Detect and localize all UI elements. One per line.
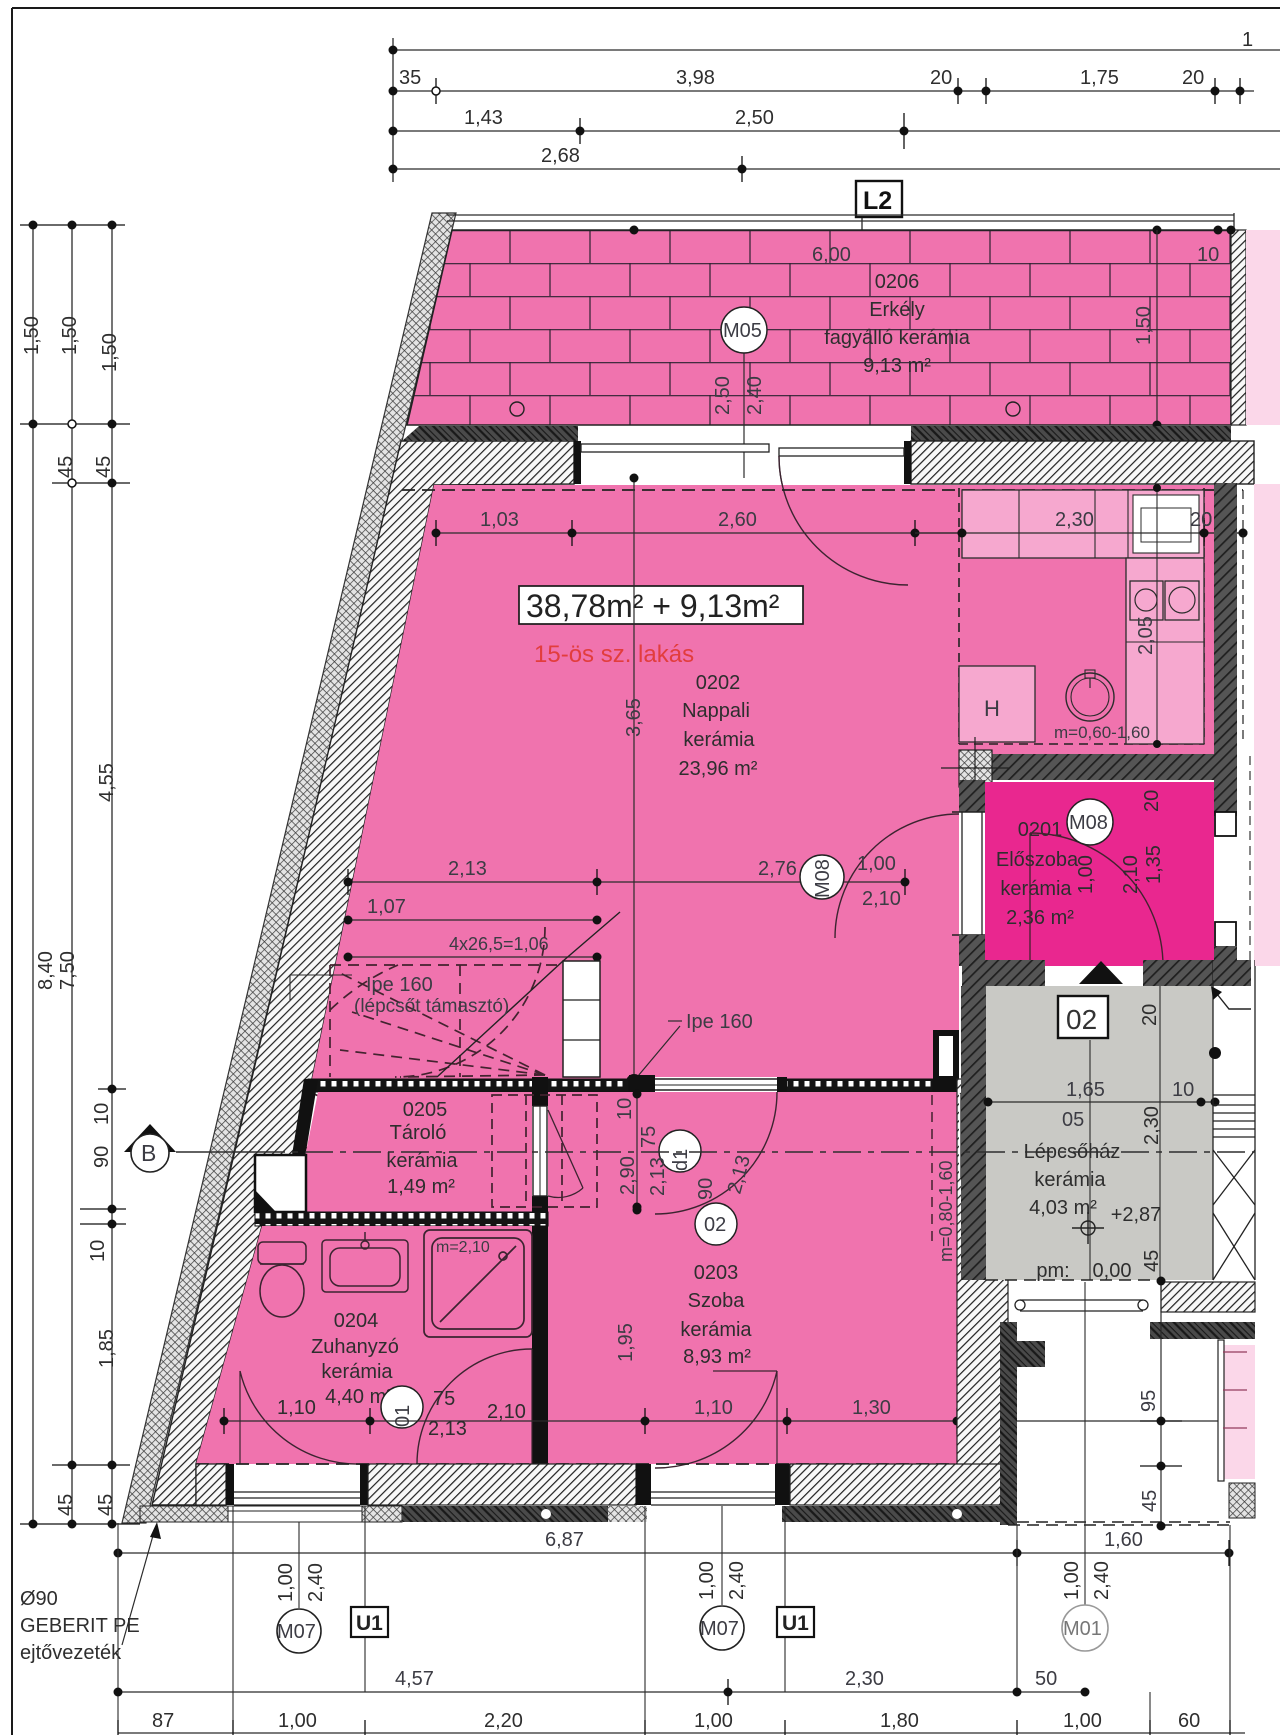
svg-text:2,05: 2,05: [1135, 616, 1157, 655]
svg-text:GEBERIT PE: GEBERIT PE: [20, 1615, 140, 1637]
svg-text:3,98: 3,98: [676, 67, 715, 89]
svg-text:10: 10: [614, 1098, 636, 1120]
svg-text:2,40: 2,40: [726, 1561, 748, 1600]
svg-text:1,50: 1,50: [99, 333, 121, 372]
svg-text:1,00: 1,00: [857, 853, 896, 875]
svg-text:Szoba: Szoba: [688, 1290, 746, 1312]
svg-text:2,30: 2,30: [1055, 509, 1094, 531]
svg-text:1: 1: [1242, 29, 1253, 51]
svg-text:ejtővezeték: ejtővezeték: [20, 1642, 122, 1664]
svg-text:U1: U1: [356, 1612, 383, 1635]
svg-text:+2,87: +2,87: [1111, 1204, 1162, 1226]
svg-text:10: 10: [1197, 244, 1219, 266]
svg-text:M07: M07: [700, 1618, 739, 1640]
svg-text:90: 90: [91, 1146, 113, 1168]
svg-text:1,10: 1,10: [694, 1397, 733, 1419]
svg-text:kerámia: kerámia: [1000, 878, 1072, 900]
svg-text:2,10: 2,10: [487, 1401, 526, 1423]
svg-text:1,80: 1,80: [880, 1710, 919, 1732]
svg-text:20: 20: [1182, 67, 1204, 89]
svg-text:01: 01: [392, 1405, 414, 1427]
svg-text:Ø90: Ø90: [20, 1588, 58, 1610]
svg-text:95: 95: [1138, 1390, 1160, 1412]
svg-text:2,90: 2,90: [617, 1156, 639, 1195]
svg-text:2,60: 2,60: [718, 509, 757, 531]
svg-text:35: 35: [399, 67, 421, 89]
svg-text:1,50: 1,50: [1133, 306, 1155, 345]
svg-text:Zuhanyzó: Zuhanyzó: [311, 1336, 399, 1358]
svg-text:20: 20: [1141, 790, 1163, 812]
svg-text:1,50: 1,50: [59, 316, 81, 355]
svg-text:kerámia: kerámia: [1034, 1169, 1106, 1191]
svg-text:0206: 0206: [875, 271, 920, 293]
svg-text:m=2,10: m=2,10: [436, 1239, 490, 1256]
svg-text:L2: L2: [863, 187, 892, 215]
svg-text:10: 10: [87, 1240, 109, 1262]
svg-text:Erkély: Erkély: [869, 299, 925, 321]
svg-text:20: 20: [1190, 509, 1212, 531]
svg-text:U1: U1: [782, 1612, 809, 1635]
svg-text:1,00: 1,00: [694, 1710, 733, 1732]
svg-text:fagyálló kerámia: fagyálló kerámia: [824, 327, 971, 349]
svg-text:kerámia: kerámia: [680, 1319, 752, 1341]
svg-text:2,20: 2,20: [484, 1710, 523, 1732]
svg-text:45: 45: [55, 456, 77, 478]
svg-text:M05: M05: [723, 320, 762, 342]
svg-text:Nappali: Nappali: [682, 700, 750, 722]
svg-text:60: 60: [1178, 1710, 1200, 1732]
svg-text:8,40: 8,40: [35, 951, 57, 990]
svg-text:1,75: 1,75: [1080, 67, 1119, 89]
svg-text:Ipe 160: Ipe 160: [686, 1011, 753, 1033]
svg-text:4x26,5=1,06: 4x26,5=1,06: [449, 934, 549, 954]
svg-text:0202: 0202: [696, 672, 741, 694]
svg-text:87: 87: [152, 1710, 174, 1732]
svg-text:7,50: 7,50: [57, 951, 79, 990]
svg-text:0201: 0201: [1018, 819, 1063, 841]
svg-text:4,55: 4,55: [96, 763, 118, 802]
svg-text:1,00: 1,00: [1075, 855, 1097, 894]
svg-text:2,10: 2,10: [862, 888, 901, 910]
svg-text:20: 20: [1139, 1004, 1161, 1026]
svg-text:1,65: 1,65: [1066, 1079, 1105, 1101]
svg-text:2,40: 2,40: [305, 1563, 327, 1602]
svg-text:0,00: 0,00: [1093, 1260, 1132, 1282]
svg-text:1,85: 1,85: [96, 1329, 118, 1368]
svg-text:1,07: 1,07: [367, 896, 406, 918]
svg-text:02: 02: [704, 1214, 726, 1236]
svg-text:20: 20: [930, 67, 952, 89]
svg-text:3,65: 3,65: [623, 698, 645, 737]
svg-text:75: 75: [433, 1388, 455, 1410]
svg-text:kerámia: kerámia: [683, 729, 755, 751]
svg-text:8,93 m²: 8,93 m²: [683, 1346, 751, 1368]
svg-text:kerámia: kerámia: [321, 1361, 393, 1383]
svg-text:1,10: 1,10: [277, 1397, 316, 1419]
svg-text:M08: M08: [812, 859, 834, 898]
svg-text:1,00: 1,00: [1063, 1710, 1102, 1732]
svg-text:Tároló: Tároló: [390, 1122, 447, 1144]
svg-text:2,40: 2,40: [1091, 1561, 1113, 1600]
svg-text:0203: 0203: [694, 1262, 739, 1284]
svg-text:1,95: 1,95: [615, 1323, 637, 1362]
svg-text:1,49 m²: 1,49 m²: [387, 1176, 455, 1198]
svg-text:6,00: 6,00: [812, 244, 851, 266]
svg-text:1,50: 1,50: [21, 316, 43, 355]
svg-text:2,13: 2,13: [448, 858, 487, 880]
svg-text:1,00: 1,00: [1061, 1561, 1083, 1600]
svg-text:m=0,60-1,60: m=0,60-1,60: [1054, 723, 1150, 742]
svg-text:2,76: 2,76: [758, 858, 797, 880]
svg-text:(lépcsőt támasztó): (lépcsőt támasztó): [354, 996, 509, 1017]
svg-text:0205: 0205: [403, 1099, 448, 1121]
svg-text:Előszoba: Előszoba: [996, 849, 1079, 871]
svg-text:23,96 m²: 23,96 m²: [679, 758, 758, 780]
svg-text:6,87: 6,87: [545, 1529, 584, 1551]
svg-text:10: 10: [91, 1103, 113, 1125]
svg-text:m=0,80-1,60: m=0,80-1,60: [936, 1160, 956, 1262]
svg-text:1,43: 1,43: [464, 107, 503, 129]
svg-text:38,78m² + 9,13m²: 38,78m² + 9,13m²: [526, 588, 780, 624]
svg-text:1,00: 1,00: [278, 1710, 317, 1732]
svg-text:Ipe 160: Ipe 160: [366, 974, 433, 996]
svg-text:45: 45: [55, 1494, 77, 1516]
svg-text:05: 05: [1062, 1109, 1084, 1131]
svg-text:45: 45: [93, 456, 115, 478]
svg-text:1,30: 1,30: [852, 1397, 891, 1419]
svg-text:4,03 m²: 4,03 m²: [1029, 1197, 1097, 1219]
svg-text:2,13: 2,13: [647, 1157, 669, 1196]
svg-text:10: 10: [1172, 1079, 1194, 1101]
svg-text:0204: 0204: [334, 1310, 379, 1332]
svg-text:B: B: [141, 1140, 156, 1166]
svg-text:9,13 m²: 9,13 m²: [863, 355, 931, 377]
svg-text:2,50: 2,50: [712, 376, 734, 415]
svg-text:kerámia: kerámia: [386, 1150, 458, 1172]
svg-text:1,00: 1,00: [275, 1563, 297, 1602]
svg-text:pm:: pm:: [1036, 1260, 1069, 1282]
svg-text:2,40: 2,40: [744, 376, 766, 415]
svg-text:4,57: 4,57: [395, 1668, 434, 1690]
svg-text:75: 75: [638, 1126, 660, 1148]
svg-text:M08: M08: [1069, 812, 1108, 834]
svg-text:1,60: 1,60: [1104, 1529, 1143, 1551]
svg-text:M07: M07: [277, 1621, 316, 1643]
svg-text:45: 45: [1139, 1490, 1161, 1512]
svg-text:1,00: 1,00: [696, 1561, 718, 1600]
svg-text:2,50: 2,50: [735, 107, 774, 129]
svg-text:2,10: 2,10: [1120, 855, 1142, 894]
svg-text:2,68: 2,68: [541, 145, 580, 167]
svg-text:02: 02: [1066, 1004, 1097, 1035]
svg-text:2,36 m²: 2,36 m²: [1006, 907, 1074, 929]
svg-text:45: 45: [95, 1494, 117, 1516]
svg-text:2,30: 2,30: [845, 1668, 884, 1690]
svg-text:M01: M01: [1063, 1618, 1102, 1640]
svg-text:H: H: [984, 696, 1000, 721]
svg-text:1,03: 1,03: [480, 509, 519, 531]
svg-text:50: 50: [1035, 1668, 1057, 1690]
svg-text:90: 90: [695, 1178, 717, 1200]
svg-text:15-ös sz. lakás: 15-ös sz. lakás: [534, 641, 694, 668]
svg-text:1,35: 1,35: [1143, 845, 1165, 884]
